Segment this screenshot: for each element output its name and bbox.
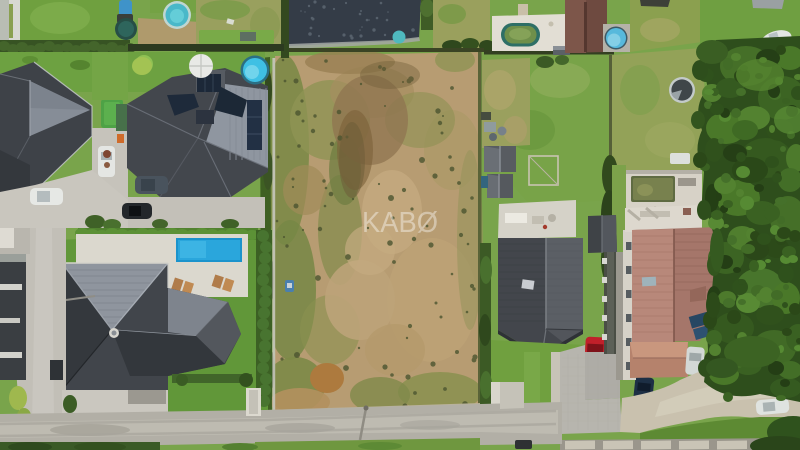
svg-text:KABØ: KABØ: [362, 207, 438, 239]
